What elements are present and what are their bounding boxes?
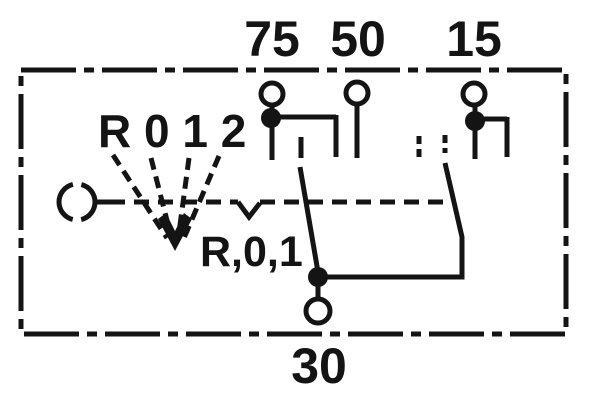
junction-dot-75 (261, 108, 281, 128)
junction-dot-15 (465, 111, 485, 131)
right-moving-contact-arm (318, 163, 462, 277)
terminal-label-15: 15 (446, 11, 502, 67)
terminal-15-pin (463, 83, 485, 105)
rotor-circle (59, 184, 95, 220)
terminal-label-50: 50 (330, 11, 386, 67)
terminal-75-contact (261, 83, 336, 160)
terminal-label-30: 30 (291, 338, 347, 394)
terminal-50-pin (346, 82, 368, 104)
junction-dot-30 (308, 267, 328, 287)
bridge-positions-label: R,0,1 (200, 228, 303, 276)
detent-notch (238, 202, 260, 217)
ignition-switch-schematic: 75 50 15 30 R 0 1 2 R,0,1 (0, 0, 600, 400)
schematic-svg: 75 50 15 30 R 0 1 2 R,0,1 (0, 0, 600, 400)
terminal-label-75: 75 (244, 11, 300, 67)
terminal-50-contact (346, 82, 368, 158)
positions-label: R 0 1 2 (98, 105, 246, 157)
open-contact-stubs (419, 135, 445, 158)
terminal-15-contact (463, 83, 507, 159)
terminal-75-pin (261, 83, 283, 105)
moving-contacts-bus (300, 163, 462, 323)
terminal-30-pin (306, 299, 330, 323)
mechanical-link-line (110, 202, 451, 217)
